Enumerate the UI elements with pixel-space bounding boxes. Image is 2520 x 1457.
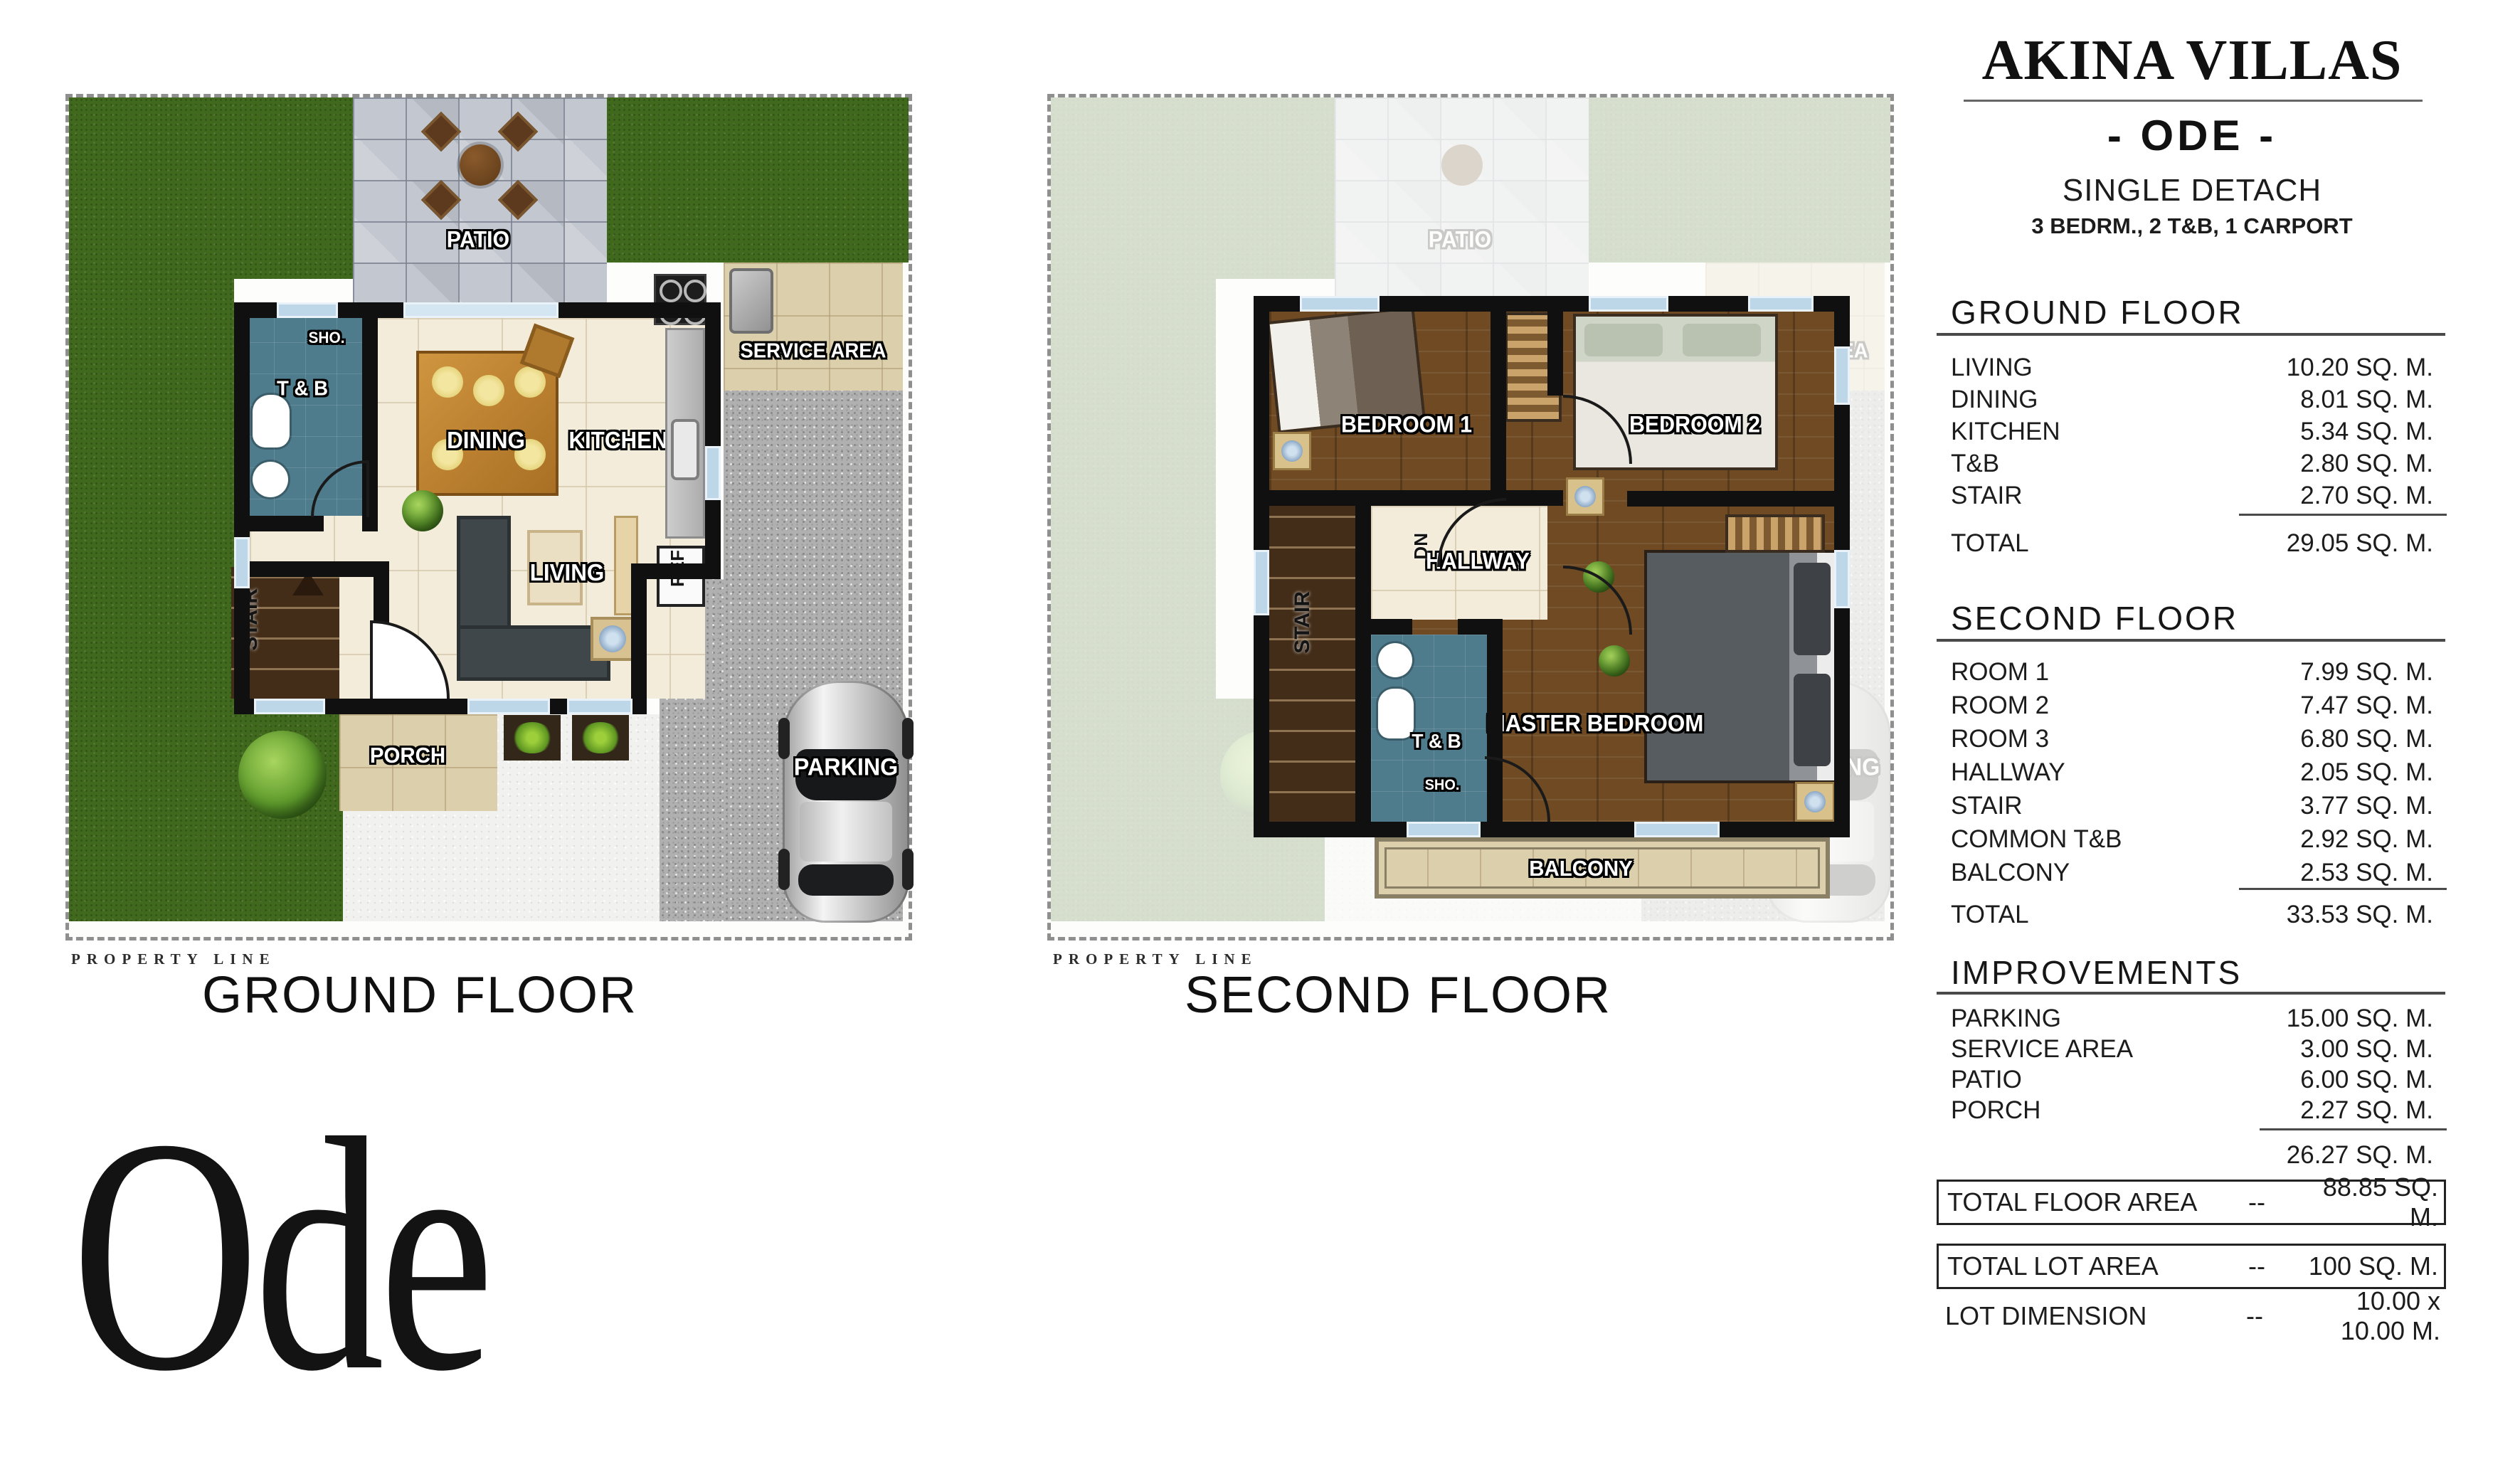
table-row: ROOM 17.99 SQ. M.	[1951, 658, 2433, 687]
house-spec: 3 BEDRM., 2 T&B, 1 CARPORT	[1939, 213, 2445, 239]
dresser	[1728, 517, 1822, 550]
lot-dimension-row: LOT DIMENSION -- 10.00 x 10.00 M.	[1937, 1293, 2446, 1339]
master-bed	[1647, 553, 1845, 780]
table-row: STAIR3.77 SQ. M.	[1951, 792, 2433, 820]
patio-area: PATIO	[353, 97, 607, 305]
second-total-rule	[2239, 888, 2447, 890]
table-row: STAIR2.70 SQ. M.	[1951, 482, 2433, 510]
table-row: COMMON T&B2.92 SQ. M.	[1951, 825, 2433, 854]
balcony-door	[1634, 822, 1720, 837]
bedroom1-label: BEDROOM 1	[1341, 412, 1472, 438]
nightstand2	[1566, 477, 1604, 516]
summary-label: TOTAL FLOOR AREA	[1939, 1187, 2225, 1217]
ref-label: REF	[667, 550, 689, 587]
row-value: 6.80 SQ. M.	[2300, 725, 2433, 753]
second-floor-caption: SECOND FLOOR	[1049, 966, 1747, 1024]
balcony-label: BALCONY	[1529, 856, 1633, 881]
stair-label: STAIR	[238, 588, 263, 651]
row-label: KITCHEN	[1951, 418, 2060, 446]
shrub	[238, 731, 327, 819]
patio-chair	[498, 112, 539, 152]
window	[277, 302, 338, 318]
service-area-label: SERVICE AREA	[740, 340, 886, 364]
ground-floor-plan: PATIO SERVICE AREA SHO. T & B STAIR	[65, 94, 912, 941]
summary-value: 88.85 SQ. M.	[2289, 1172, 2444, 1232]
toilet	[253, 395, 290, 447]
decor-plate	[599, 625, 626, 652]
brand-title: AKINA VILLAS	[1939, 28, 2445, 93]
row-label: ROOM 3	[1951, 725, 2049, 753]
car-roof	[800, 802, 892, 862]
window	[1407, 822, 1481, 837]
improvements-title: IMPROVEMENTS	[1951, 953, 2242, 992]
floorplan-flyer: PATIO SERVICE AREA SHO. T & B STAIR	[0, 0, 2520, 1457]
dining-label: DINING	[447, 427, 525, 454]
total-lot-area-box: TOTAL LOT AREA -- 100 SQ. M.	[1937, 1244, 2446, 1289]
service-area: SERVICE AREA	[724, 263, 903, 391]
row-value: 3.77 SQ. M.	[2300, 792, 2433, 820]
patio-chair	[498, 180, 539, 221]
improvements-subtotal-rule	[2260, 1128, 2447, 1130]
window	[705, 446, 721, 500]
improvements-rule	[1937, 992, 2445, 995]
total-value: 33.53 SQ. M.	[2287, 901, 2433, 929]
table-row: ROOM 27.47 SQ. M.	[1951, 692, 2433, 720]
kitchen-counter	[665, 328, 705, 539]
stair-arrow	[292, 571, 324, 595]
window	[1834, 346, 1850, 405]
porch: PORCH	[339, 714, 497, 811]
patio-chair	[421, 180, 462, 221]
ground-table-rule	[1937, 333, 2445, 336]
plant2	[1583, 561, 1614, 593]
service-door	[729, 268, 773, 334]
plant3	[1599, 645, 1630, 677]
second-table-title: SECOND FLOOR	[1951, 599, 2238, 637]
lavatory	[253, 462, 288, 497]
tnb2-label: T & B	[1412, 730, 1461, 753]
total-floor-area-box: TOTAL FLOOR AREA -- 88.85 SQ. M.	[1937, 1180, 2446, 1225]
row-value: 7.99 SQ. M.	[2300, 658, 2433, 687]
table-row: LIVING10.20 SQ. M.	[1951, 354, 2433, 382]
table-row: BALCONY2.53 SQ. M.	[1951, 859, 2433, 887]
row-label: STAIR	[1951, 482, 2022, 510]
hallway-label: HALLWAY	[1426, 549, 1530, 575]
summary-dash: --	[2225, 1251, 2289, 1281]
ground-floor-caption: GROUND FLOOR	[68, 966, 772, 1024]
window	[1834, 550, 1850, 608]
plate	[473, 375, 504, 406]
sho-label: SHO.	[308, 329, 344, 347]
row-label: ROOM 2	[1951, 692, 2049, 720]
end-table	[591, 617, 635, 661]
plate	[432, 366, 463, 398]
ground-total-rule	[2239, 514, 2447, 516]
second-table-rule	[1937, 639, 2445, 642]
patio-chair	[421, 112, 462, 152]
window	[1589, 296, 1668, 312]
patio-table	[460, 144, 501, 186]
title-underline	[1964, 100, 2423, 102]
row-label: T&B	[1951, 450, 1999, 478]
table-row: ROOM 36.80 SQ. M.	[1951, 725, 2433, 753]
tnb2-room: T & B SHO.	[1371, 635, 1487, 822]
window	[567, 699, 632, 714]
patio-label: PATIO	[447, 227, 509, 253]
console	[614, 516, 638, 615]
sho2-label: SHO.	[1425, 777, 1460, 794]
window	[1300, 296, 1380, 312]
row-label: SERVICE AREA	[1951, 1035, 2133, 1064]
sofa-horizontal	[457, 625, 610, 681]
window	[254, 699, 325, 714]
porch-label: PORCH	[370, 743, 445, 768]
row-label: PATIO	[1951, 1066, 2022, 1094]
balcony: BALCONY	[1375, 837, 1830, 899]
living-label: LIVING	[530, 559, 605, 586]
car-wheel	[902, 718, 914, 759]
bed2	[1576, 317, 1775, 467]
nightstand3	[1795, 782, 1835, 822]
row-value: 10.20 SQ. M.	[2287, 354, 2433, 382]
patio-sliding-door	[403, 302, 558, 318]
bedroom2-label: BEDROOM 2	[1629, 412, 1760, 438]
row-value: 8.01 SQ. M.	[2300, 386, 2433, 414]
parking-label: PARKING	[794, 754, 899, 782]
window	[467, 699, 550, 714]
summary-value: 10.00 x 10.00 M.	[2287, 1286, 2446, 1346]
tnb-room: SHO. T & B	[243, 311, 362, 516]
table-row: SERVICE AREA3.00 SQ. M.	[1951, 1035, 2433, 1064]
tnb-label: T & B	[277, 378, 328, 401]
kitchen-label: KITCHEN	[568, 427, 667, 454]
planter-box	[504, 715, 561, 761]
window	[234, 537, 250, 588]
row-value: 2.27 SQ. M.	[2300, 1096, 2433, 1125]
stair2-label: STAIR	[1291, 591, 1315, 654]
model-name: Ode	[71, 1101, 489, 1409]
second-floor-plan: PATIO SERVICE AREA PARKING STAIR T & B S…	[1047, 94, 1894, 941]
burner	[660, 280, 682, 302]
burner	[684, 280, 706, 302]
row-value: 2.80 SQ. M.	[2300, 450, 2433, 478]
row-label: PORCH	[1951, 1096, 2040, 1125]
kitchen-sink	[671, 419, 699, 480]
row-value: 2.05 SQ. M.	[2300, 758, 2433, 787]
row-label: LIVING	[1951, 354, 2033, 382]
summary-value: 100 SQ. M.	[2289, 1251, 2444, 1281]
grass-top-right	[607, 97, 909, 263]
toilet2	[1378, 689, 1414, 738]
table-row: HALLWAY2.05 SQ. M.	[1951, 758, 2433, 787]
row-label: PARKING	[1951, 1005, 2061, 1033]
table-row: PORCH2.27 SQ. M.	[1951, 1096, 2433, 1125]
total-label: TOTAL	[1951, 529, 2029, 558]
row-value: 2.53 SQ. M.	[2300, 859, 2433, 887]
lavatory2	[1378, 643, 1412, 677]
summary-label: LOT DIMENSION	[1937, 1301, 2223, 1331]
ground-table-title: GROUND FLOOR	[1951, 293, 2244, 332]
row-value: 5.34 SQ. M.	[2300, 418, 2433, 446]
parked-car: PARKING	[783, 681, 909, 923]
window	[1254, 550, 1269, 615]
total-row: TOTAL33.53 SQ. M.	[1951, 901, 2433, 929]
burner	[684, 302, 706, 325]
table-row: DINING8.01 SQ. M.	[1951, 386, 2433, 414]
table-row: T&B2.80 SQ. M.	[1951, 450, 2433, 478]
refrigerator: REF	[657, 546, 705, 607]
car-rear-window	[798, 864, 894, 896]
indoor-plant	[402, 490, 443, 531]
table-row: PARKING15.00 SQ. M.	[1951, 1005, 2433, 1033]
closet	[1508, 315, 1559, 419]
subtotal-value: 26.27 SQ. M.	[2287, 1141, 2433, 1170]
dn-label: DN	[1410, 533, 1432, 560]
total-row: TOTAL29.05 SQ. M.	[1951, 529, 2433, 558]
ghost-patio-label: PATIO	[1429, 227, 1491, 253]
row-label: ROOM 1	[1951, 658, 2049, 687]
table-row: PATIO6.00 SQ. M.	[1951, 1066, 2433, 1094]
summary-label: TOTAL LOT AREA	[1939, 1251, 2225, 1281]
window	[1748, 296, 1814, 312]
model-code: - ODE -	[1939, 111, 2445, 160]
row-label: STAIR	[1951, 792, 2022, 820]
burner	[660, 302, 682, 325]
car-wheel	[778, 849, 790, 890]
table-row: KITCHEN5.34 SQ. M.	[1951, 418, 2433, 446]
row-value: 3.00 SQ. M.	[2300, 1035, 2433, 1064]
row-label: COMMON T&B	[1951, 825, 2122, 854]
row-value: 15.00 SQ. M.	[2287, 1005, 2433, 1033]
house-type: SINGLE DETACH	[1939, 173, 2445, 208]
row-value: 6.00 SQ. M.	[2300, 1066, 2433, 1094]
master-label: MASTER BEDROOM	[1487, 710, 1704, 737]
stair2-area: STAIR	[1269, 506, 1355, 822]
row-label: DINING	[1951, 386, 2038, 414]
planter-box	[572, 715, 629, 761]
dining-table	[419, 354, 556, 493]
total-value: 29.05 SQ. M.	[2287, 529, 2433, 558]
car-wheel	[902, 849, 914, 890]
row-label: BALCONY	[1951, 859, 2070, 887]
row-value: 2.92 SQ. M.	[2300, 825, 2433, 854]
nightstand	[1273, 432, 1311, 470]
row-value: 7.47 SQ. M.	[2300, 692, 2433, 720]
subtotal-row: 26.27 SQ. M.	[1951, 1141, 2433, 1170]
summary-dash: --	[2223, 1301, 2287, 1331]
total-label: TOTAL	[1951, 901, 2029, 929]
row-label: HALLWAY	[1951, 758, 2065, 787]
row-value: 2.70 SQ. M.	[2300, 482, 2433, 510]
stove	[654, 274, 706, 325]
car-wheel	[778, 718, 790, 759]
summary-dash: --	[2225, 1187, 2289, 1217]
